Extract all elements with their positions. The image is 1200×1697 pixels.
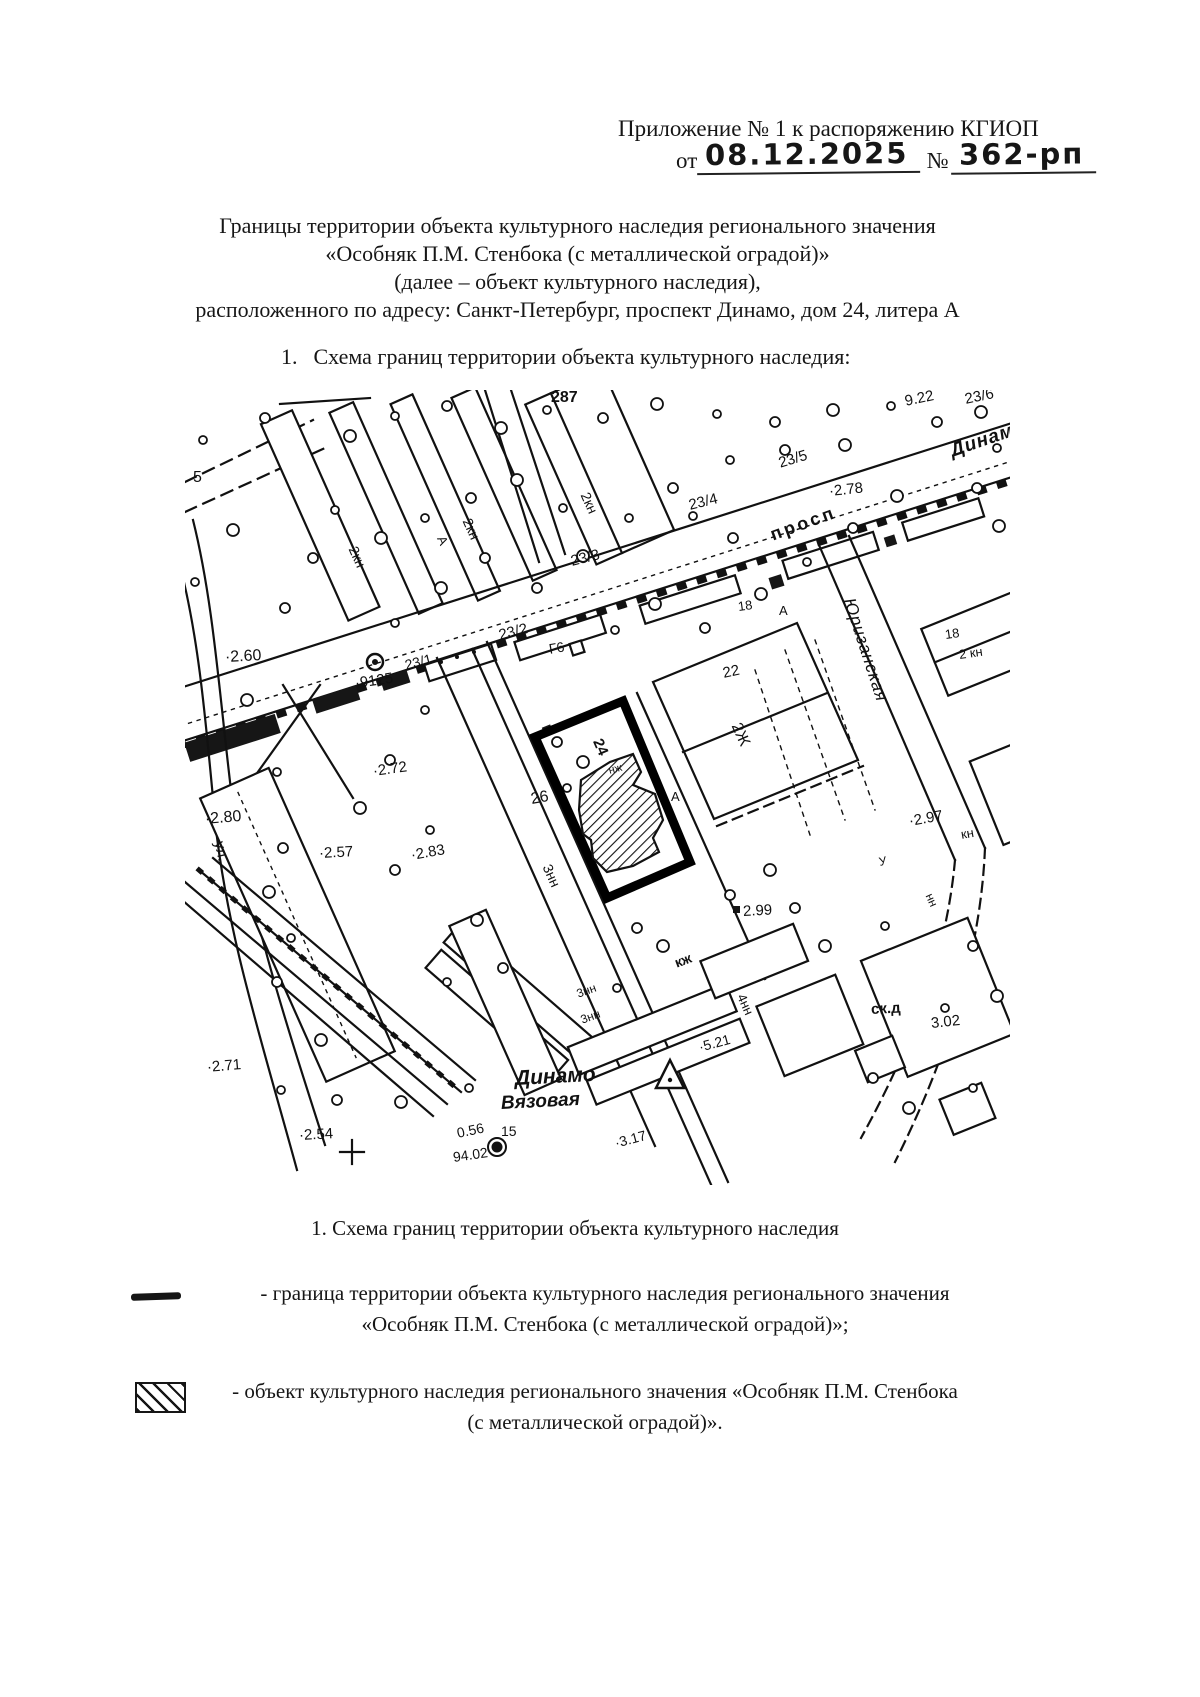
map-caption: 1. Схема границ территории объекта культ… xyxy=(0,1216,1150,1241)
map-label: 23/6 xyxy=(963,390,995,407)
map-label: 24 xyxy=(590,736,610,757)
map-label: ·5.21 xyxy=(697,1032,731,1054)
map-label: 2 кн xyxy=(958,645,983,661)
heritage-object-symbol xyxy=(135,1382,186,1413)
document-page: Приложение № 1 к распоряжению КГИОП от 0… xyxy=(0,0,1200,1697)
map-label: 94.02 xyxy=(452,1145,489,1164)
map-label: 3нн xyxy=(575,982,598,1000)
map-label: нж xyxy=(608,763,624,777)
title-line4: расположенного по адресу: Санкт-Петербур… xyxy=(0,296,1155,324)
map-label: 2.99 xyxy=(743,902,773,919)
map-label: Вязовая xyxy=(501,1090,581,1113)
title-line1: Границы территории объекта культурного н… xyxy=(0,212,1155,240)
legend1-line1: - граница территории объекта культурного… xyxy=(210,1278,1000,1309)
map-label: 15 xyxy=(501,1124,517,1138)
map-label: 23/4 xyxy=(687,491,719,513)
legend1-line2: «Особняк П.М. Стенбока (с металлической … xyxy=(210,1309,1000,1340)
number-sign: № xyxy=(927,148,949,174)
map-label: 23/2 xyxy=(497,621,529,643)
map-label: ·2.83 xyxy=(410,842,446,863)
handwritten-number: 362-рп xyxy=(950,139,1096,175)
map-label: 4нн xyxy=(735,992,756,1017)
map-label: 2кн xyxy=(461,516,483,541)
map-label: ·2.80 xyxy=(204,809,242,828)
map-label: 22 xyxy=(721,663,740,681)
map-label: Юризанская xyxy=(841,596,891,704)
map-label: ·2.57 xyxy=(319,844,354,861)
section1-text: Схема границ территории объекта культурн… xyxy=(314,344,851,369)
map-label: 23/5 xyxy=(777,448,809,471)
map-label: кж xyxy=(673,951,694,970)
title-line3: (далее – объект культурного наследия), xyxy=(0,268,1155,296)
legend-item-object: - объект культурного наследия региональн… xyxy=(195,1376,995,1438)
map-label: ул. xyxy=(212,840,231,863)
map-label: 5 xyxy=(193,470,202,486)
map-label: 3нн xyxy=(579,1008,602,1026)
map-label: 26 xyxy=(530,789,550,808)
map-label: 2Ж xyxy=(728,721,752,749)
map-label: А xyxy=(671,790,680,803)
map-label: нн xyxy=(924,892,940,909)
map-label: 18 xyxy=(737,598,753,613)
map-label: ·2.78 xyxy=(828,480,864,498)
title-line2: «Особняк П.М. Стенбока (с металлической … xyxy=(0,240,1155,268)
map-label: Г6 xyxy=(548,639,566,655)
map-label: Динамо xyxy=(514,1064,596,1089)
map-label: 2кн xyxy=(347,544,369,569)
header-line2: от 08.12.2025 № 362-рп xyxy=(676,140,1096,174)
map-label: 9.22 xyxy=(903,390,935,409)
map-label: Динамо xyxy=(948,417,1010,461)
map-label: ·2.72 xyxy=(372,759,408,779)
section1-heading: 1.Схема границ территории объекта культу… xyxy=(281,344,851,370)
legend2-line2: (с металлической оградой)». xyxy=(195,1407,995,1438)
map-label: А xyxy=(435,534,450,547)
map-label: ·2.71 xyxy=(206,1057,241,1075)
map-label: 23/3 xyxy=(569,547,601,569)
section1-number: 1. xyxy=(281,344,298,369)
map-label: А xyxy=(779,604,788,617)
legend-item-boundary: - граница территории объекта культурного… xyxy=(210,1278,1000,1340)
handwritten-date: 08.12.2025 xyxy=(697,139,921,175)
legend2-line1: - объект культурного наследия региональн… xyxy=(195,1376,995,1407)
map-label: 3.02 xyxy=(930,1013,961,1031)
boundary-line-symbol xyxy=(131,1292,181,1301)
map-label: У xyxy=(878,855,888,868)
map-label: ск.д xyxy=(871,1000,901,1017)
map-label: просп xyxy=(768,503,839,543)
site-plan-map: 2879.2223/6Динамо23/5·2.7823/4просп23/32… xyxy=(185,390,1010,1185)
map-label: 287 xyxy=(551,390,578,406)
map-label: 3нн xyxy=(541,862,563,889)
map-label: 18 xyxy=(944,626,960,641)
map-label: 2кн xyxy=(579,490,601,515)
map-label: кн xyxy=(960,826,975,841)
map-label: ·2.97 xyxy=(908,808,944,829)
map-label: 0.56 xyxy=(456,1120,486,1139)
map-label: ·2.54 xyxy=(299,1126,334,1143)
date-prefix: от xyxy=(676,148,697,174)
map-label: ·3.17 xyxy=(613,1128,647,1150)
map-label-layer: 2879.2223/6Динамо23/5·2.7823/4просп23/32… xyxy=(185,390,1010,1185)
map-label: 23/1 xyxy=(403,652,433,672)
map-label: ·2.60 xyxy=(225,648,262,666)
map-label: ·9125 xyxy=(354,671,394,691)
document-title: Границы территории объекта культурного н… xyxy=(0,212,1155,324)
